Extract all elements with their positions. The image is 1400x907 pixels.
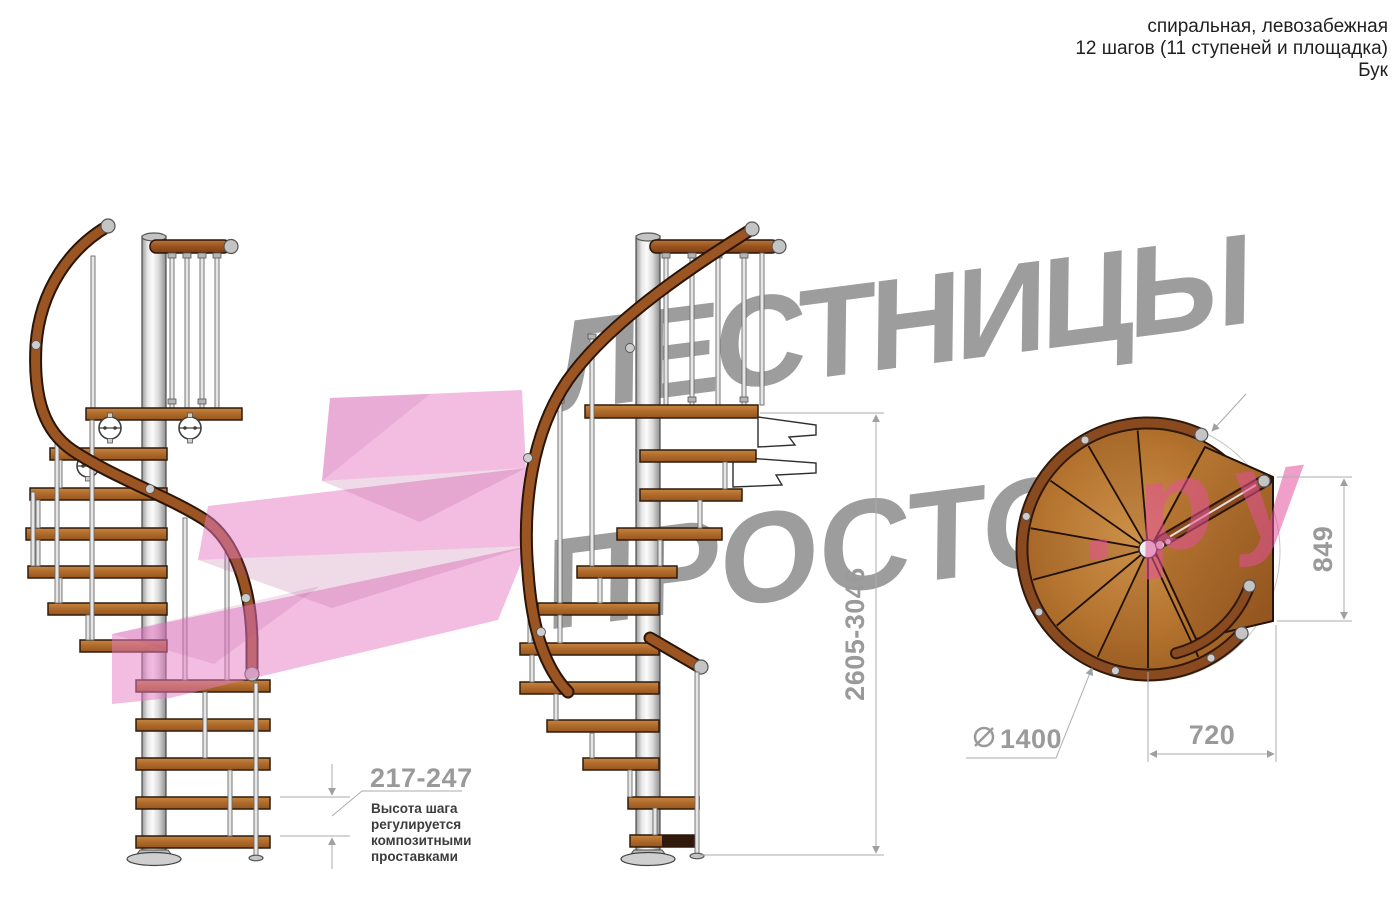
dim-step-height: 217-247 Высота шага регулируется компози…: [280, 763, 473, 869]
handrail-end-cap: [1235, 627, 1248, 640]
dim-note-line: регулируется: [371, 817, 461, 832]
pole-base: [127, 850, 181, 866]
header-steps: 12 шагов (11 ступеней и площадка): [1075, 38, 1388, 59]
step: [136, 836, 270, 848]
handrail-end-cap: [224, 240, 238, 254]
dim-total-height-value: 2605-3046: [840, 567, 870, 701]
pole-base: [621, 850, 675, 866]
step: [640, 450, 756, 462]
dim-720-value: 720: [1189, 720, 1236, 750]
handrail-end-cap: [745, 222, 759, 236]
step: [547, 720, 659, 732]
pink-arrow-watermark: [112, 390, 528, 704]
step: [640, 489, 742, 501]
step: [577, 566, 677, 578]
diameter-icon: [975, 728, 993, 746]
dim-diameter: 1400: [966, 668, 1092, 758]
platform-board: [585, 405, 758, 418]
step: [617, 528, 722, 540]
dim-note-line: Высота шага: [371, 801, 458, 816]
dim-diameter-value: 1400: [1000, 724, 1062, 754]
step: [583, 758, 659, 770]
dim-849-value: 849: [1308, 526, 1338, 573]
step: [538, 603, 659, 615]
wall-bracket: [758, 417, 816, 447]
step: [26, 528, 167, 540]
step: [136, 797, 270, 809]
step: [628, 797, 699, 809]
drawing-page: ЛЕСТНИЦЫ ПРОСТО: [0, 0, 1400, 907]
staircase-drawing: ЛЕСТНИЦЫ ПРОСТО: [0, 0, 1400, 907]
step-shadow: [662, 835, 697, 847]
header-type: спиральная, левозабежная: [1147, 16, 1388, 37]
step: [520, 682, 659, 694]
dim-step-height-value: 217-247: [370, 763, 473, 793]
step: [136, 758, 270, 770]
watermark-line2-pink: .ру: [1080, 417, 1305, 589]
top-handrail: [150, 240, 230, 253]
handrail-end-cap: [101, 219, 115, 233]
header-info: спиральная, левозабежная 12 шагов (11 ст…: [1075, 16, 1388, 81]
handrail-end-cap: [772, 240, 786, 254]
dim-note-line: проставками: [371, 849, 458, 864]
step: [28, 566, 167, 578]
dim-note-line: композитными: [371, 833, 471, 848]
handrail-end-cap: [1244, 580, 1256, 592]
step: [48, 603, 167, 615]
watermark-line2-gray: ПРОСТО: [545, 446, 1082, 658]
header-material: Бук: [1358, 60, 1389, 81]
